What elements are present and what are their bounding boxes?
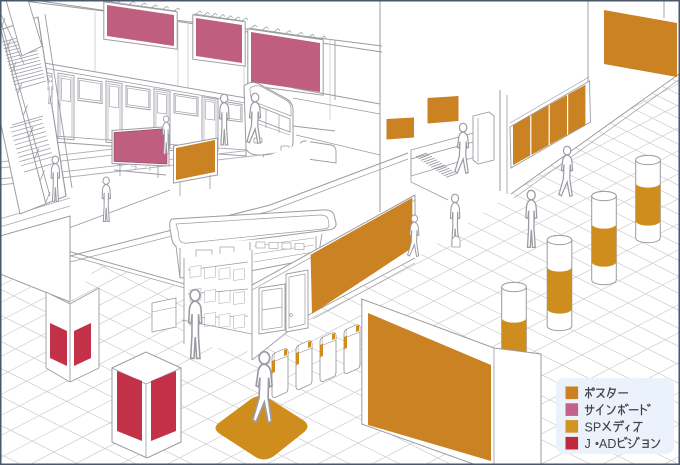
svg-text:J: J bbox=[585, 437, 591, 451]
svg-text:SP: SP bbox=[585, 420, 602, 434]
svg-text:AD: AD bbox=[599, 437, 616, 451]
